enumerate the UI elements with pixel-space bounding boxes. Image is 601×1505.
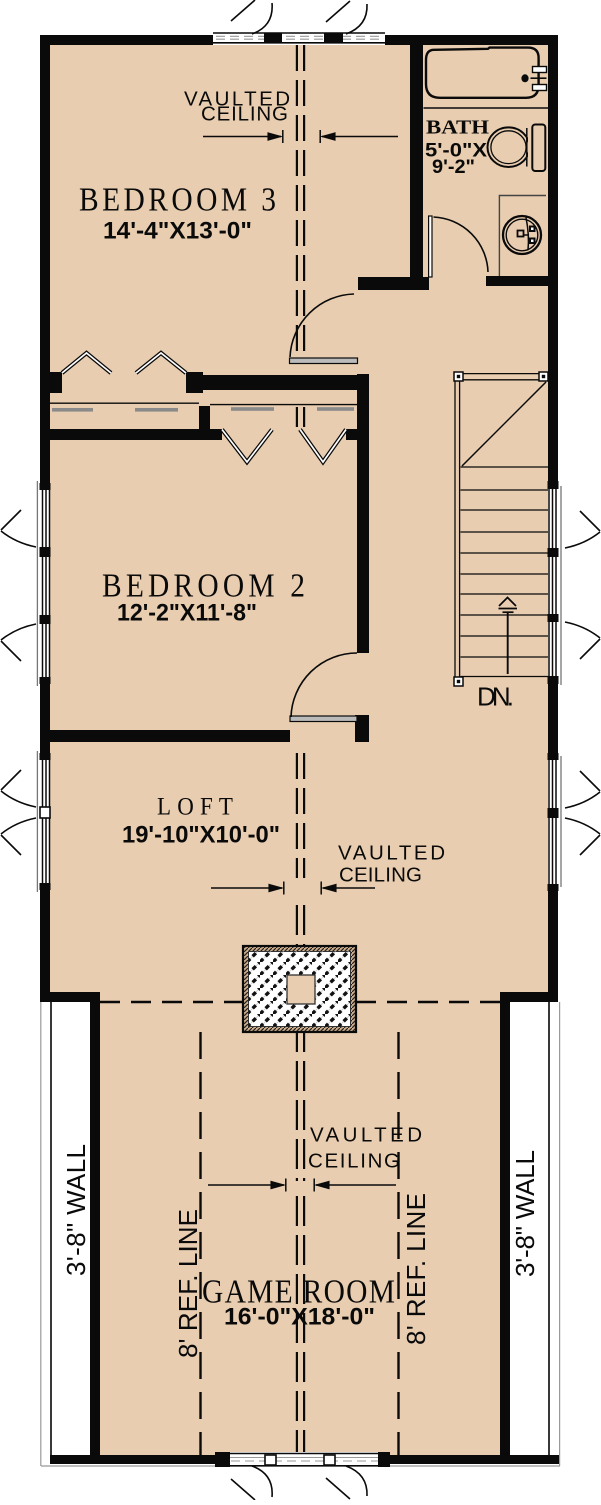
svg-text:CEILING: CEILING bbox=[201, 103, 288, 126]
svg-text:8' REF. LINE: 8' REF. LINE bbox=[173, 1209, 203, 1358]
svg-text:3'-8" WALL: 3'-8" WALL bbox=[61, 1144, 91, 1276]
svg-text:CEILING: CEILING bbox=[339, 864, 422, 887]
svg-text:16'-0"X18'-0": 16'-0"X18'-0" bbox=[224, 1304, 375, 1331]
svg-text:DN.: DN. bbox=[477, 682, 514, 712]
svg-text:9'-2": 9'-2" bbox=[432, 156, 475, 178]
svg-text:8' REF. LINE: 8' REF. LINE bbox=[401, 1193, 431, 1345]
svg-text:14'-4"X13'-0": 14'-4"X13'-0" bbox=[103, 218, 252, 245]
svg-text:BATH: BATH bbox=[426, 118, 489, 139]
svg-text:BEDROOM 3: BEDROOM 3 bbox=[79, 181, 276, 218]
svg-text:CEILING: CEILING bbox=[308, 1150, 400, 1173]
svg-text:12'-2"X11'-8": 12'-2"X11'-8" bbox=[117, 600, 257, 627]
svg-text:19'-10"X10'-0": 19'-10"X10'-0" bbox=[122, 822, 280, 849]
svg-text:3'-8" WALL: 3'-8" WALL bbox=[510, 1150, 540, 1277]
